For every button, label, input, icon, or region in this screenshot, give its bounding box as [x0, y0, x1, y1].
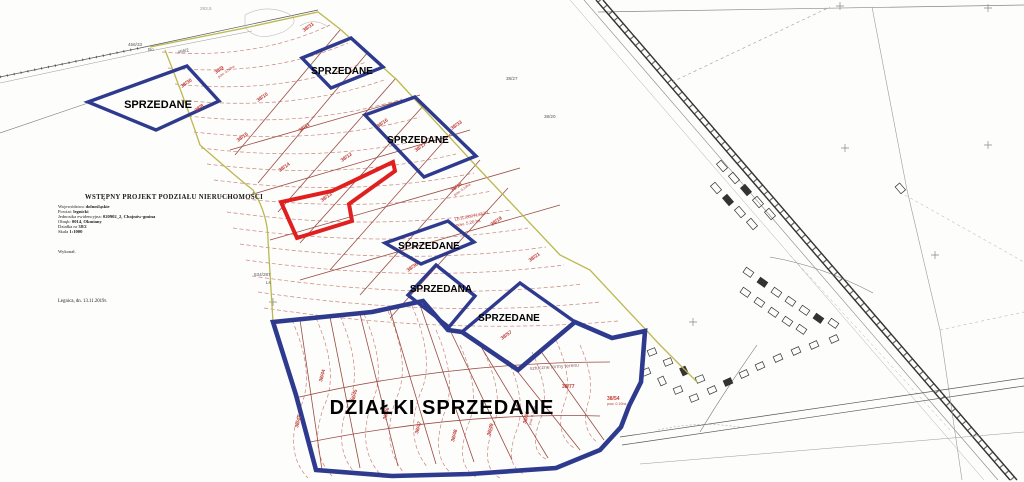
- author-line: Wykonał.: [58, 249, 290, 254]
- parcel-label: 38/11: [298, 122, 312, 134]
- parcel-label: 38/14: [278, 161, 292, 173]
- field-value: dolnośląskie: [86, 204, 110, 209]
- sold-label-left: SPRZEDANE: [124, 99, 192, 111]
- sold-parcel-middle-a: [408, 265, 475, 327]
- parcel-label: 38/16: [376, 117, 390, 129]
- parcel-38-20-label: 38/20: [544, 114, 556, 119]
- field-value: 1:1000: [69, 229, 82, 234]
- parcel-label: 38/44: [318, 369, 327, 383]
- parcel-label: 38/21: [528, 251, 542, 263]
- parcel-label: 38/47: [414, 421, 423, 435]
- parcel-label: 38/48: [450, 429, 459, 443]
- land-use-ls-label: Ls: [266, 280, 272, 285]
- parcel-label: 38/77: [562, 384, 575, 390]
- sold-label-upper-right: SPRZEDANE: [387, 135, 449, 146]
- parcel-label: 38/49: [486, 423, 495, 437]
- title-block: WSTĘPNY PROJEKT PODZIAŁU NIERUCHOMOŚCI W…: [58, 194, 290, 254]
- parcel-label: 38/15: [236, 131, 250, 143]
- parcel-456-2-label: 456/2: [177, 47, 190, 55]
- parcel-area-label: pow. 0,10ha: [607, 402, 626, 406]
- field-scale: Skala 1:1000: [58, 230, 290, 235]
- parcel-label: 38/30: [180, 77, 194, 89]
- parcel-534-287-label: 534/287: [254, 272, 271, 277]
- sold-label-top: SPRZEDANE: [311, 66, 373, 77]
- survey-cross-marks: [269, 2, 992, 326]
- sold-label-lower: SPRZEDANE: [478, 313, 540, 324]
- sold-area-big: [273, 301, 645, 476]
- place-date: Legnica, dn. 13.11.2019r.: [58, 299, 107, 304]
- parcel-label: 38/12: [340, 151, 354, 163]
- parcel-38-27-label: 38/27: [506, 76, 518, 81]
- document-title: WSTĘPNY PROJEKT PODZIAŁU NIERUCHOMOŚCI: [58, 194, 290, 201]
- sold-area-big-label: DZIAŁKI SPRZEDANE: [330, 397, 555, 419]
- cadastral-map-page: 38/8 38/9pow. 0,50ha 38/10 38/11 38/12 3…: [0, 0, 1024, 482]
- parcel-label: 38/31: [302, 21, 316, 33]
- parcel-label: 38/57: [500, 329, 514, 341]
- parcel-label: 38/33: [450, 119, 464, 131]
- field-label: Skala: [58, 229, 68, 234]
- sold-label-middle: SPRZEDANE: [398, 241, 460, 252]
- parcel-456-33-label: 456/33: [128, 42, 142, 47]
- field-value: 020902_2, Chojnów-gmina: [103, 214, 155, 219]
- parcel-label: 38/19: [490, 215, 504, 227]
- highlight-parcel-outline: [281, 162, 395, 238]
- sold-parcel-lower: [462, 283, 575, 370]
- sold-label-middle-a: SPRZEDANA: [410, 284, 472, 295]
- parcel-label: 38/10: [256, 91, 270, 103]
- elevation-label: 293,5: [200, 6, 212, 11]
- parcel-label: 38/8: [194, 103, 206, 114]
- land-use-bo-label: Bo: [148, 47, 154, 52]
- sold-parcel-left: [88, 66, 219, 130]
